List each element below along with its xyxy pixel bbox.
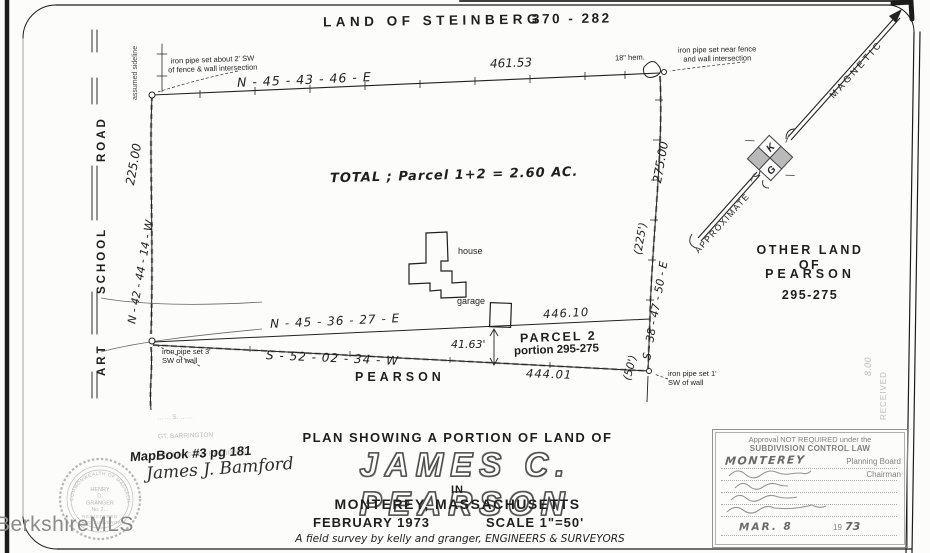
received-stamp: RECEIVED (879, 358, 888, 420)
abutter-south-label: PEARSON (355, 370, 445, 385)
seal-name-1: HENRY (90, 487, 109, 493)
parcel2-north-distance-label: 446.10 (543, 306, 590, 322)
iron-pipe-sw-note: iron pipe set 3' SW of wall (162, 348, 211, 366)
iron-pipe-ne (662, 70, 667, 75)
north-distance-label: 461.53 (490, 55, 532, 71)
approval-rule-6 (721, 535, 897, 536)
surveyor-seal: COMMONWEALTH OF MASSACHUSETTS HENRY D. G… (0, 0, 140, 539)
iron-pipe-nw (149, 92, 155, 98)
abutter-north-label: LAND OF STEINBERG (323, 11, 542, 30)
plan-title-line: PLAN SHOWING A PORTION OF LAND OF (285, 430, 630, 445)
approval-board-label: Planning Board (846, 457, 901, 466)
garage-label: garage (457, 296, 485, 307)
parcel2-south-distance-label: 444.01 (526, 367, 573, 382)
approval-rule-1 (721, 468, 897, 469)
seal-ring-text: COMMONWEALTH OF MASSACHUSETTS (0, 0, 131, 503)
approval-year: 73 (845, 520, 860, 533)
hemlock-tree-symbol (643, 62, 660, 78)
road-name-art: ART (96, 338, 110, 376)
garage-offset-label: 41.63' (451, 339, 486, 352)
title-credit: A field survey by kelly and granger, ENG… (280, 533, 640, 545)
approval-stamp-box: Approval NOT REQUIRED under the SUBDIVIS… (712, 429, 908, 548)
hemlock-label: 18" hem. (615, 53, 645, 63)
branch-road-lines (101, 298, 262, 352)
house-label: house (458, 246, 483, 257)
approval-line2: SUBDIVISION CONTROL LAW (713, 444, 907, 453)
approval-rule-3 (721, 492, 897, 493)
monument-markers (149, 62, 667, 374)
approval-year-prefix: 19 (833, 523, 842, 532)
approval-rule-5 (721, 516, 897, 517)
garage-outline (490, 303, 512, 328)
iron-pipe-ne-note: iron pipe set near fence and wall inters… (678, 45, 757, 64)
approval-town-stamp: MONTEREY (724, 453, 806, 467)
watermark: BerkshireMLS (0, 513, 134, 538)
title-date: FEBRUARY 1973 (313, 515, 430, 530)
house-outline (409, 232, 466, 298)
fee-annotation: 8.00 (864, 348, 874, 376)
other-land-line3: 295-275 (745, 288, 875, 303)
abutter-north-deed-ref: 370 - 282 (532, 10, 612, 27)
svg-text:COMMONWEALTH OF MASSACHUSETTS: COMMONWEALTH OF MASSACHUSETTS (0, 0, 131, 503)
garage-dimension-arrow (490, 329, 498, 365)
north-arrowhead (889, 9, 902, 23)
iron-pipe-se-note: iron pipe set 1' SW of wall (668, 370, 717, 388)
iron-pipe-sw (149, 338, 155, 344)
survey-plan-page: K G COMMONWEALTH OF MASSACHUSETTS HENRY … (0, 0, 930, 553)
north-boundary-line (152, 73, 660, 95)
iron-pipe-se (647, 369, 652, 374)
assumed-sideline-note: assumed sideline (132, 30, 140, 100)
seal-name-2: D. (97, 494, 103, 500)
recorder-stamp-line2: GT. BARRINGTON (158, 429, 246, 442)
seal-name-3: GRANGER (86, 501, 114, 507)
road-name-school: SCHOOL (96, 224, 110, 294)
approval-rule-2 (721, 480, 897, 481)
approval-chairman-label: Chairman (866, 470, 901, 479)
boundary-lines (150, 71, 663, 410)
other-land-line2: PEARSON (745, 267, 875, 282)
approval-line1: Approval NOT REQUIRED under the (713, 435, 907, 444)
recorder-stamp-line1: …… S. …… (157, 410, 245, 423)
road-name-road: ROAD (96, 108, 110, 162)
approval-rule-4 (721, 504, 897, 505)
kg-surveyor-symbol: K G (728, 116, 813, 201)
title-scale: SCALE 1"=50' (486, 515, 584, 530)
approval-date: MAR. 8 (739, 521, 793, 534)
iron-pipe-nw-note: iron pipe set about 2' SW of fence & wal… (168, 54, 258, 75)
title-town: MONTEREY, MASSACHUSETTS (285, 496, 630, 513)
